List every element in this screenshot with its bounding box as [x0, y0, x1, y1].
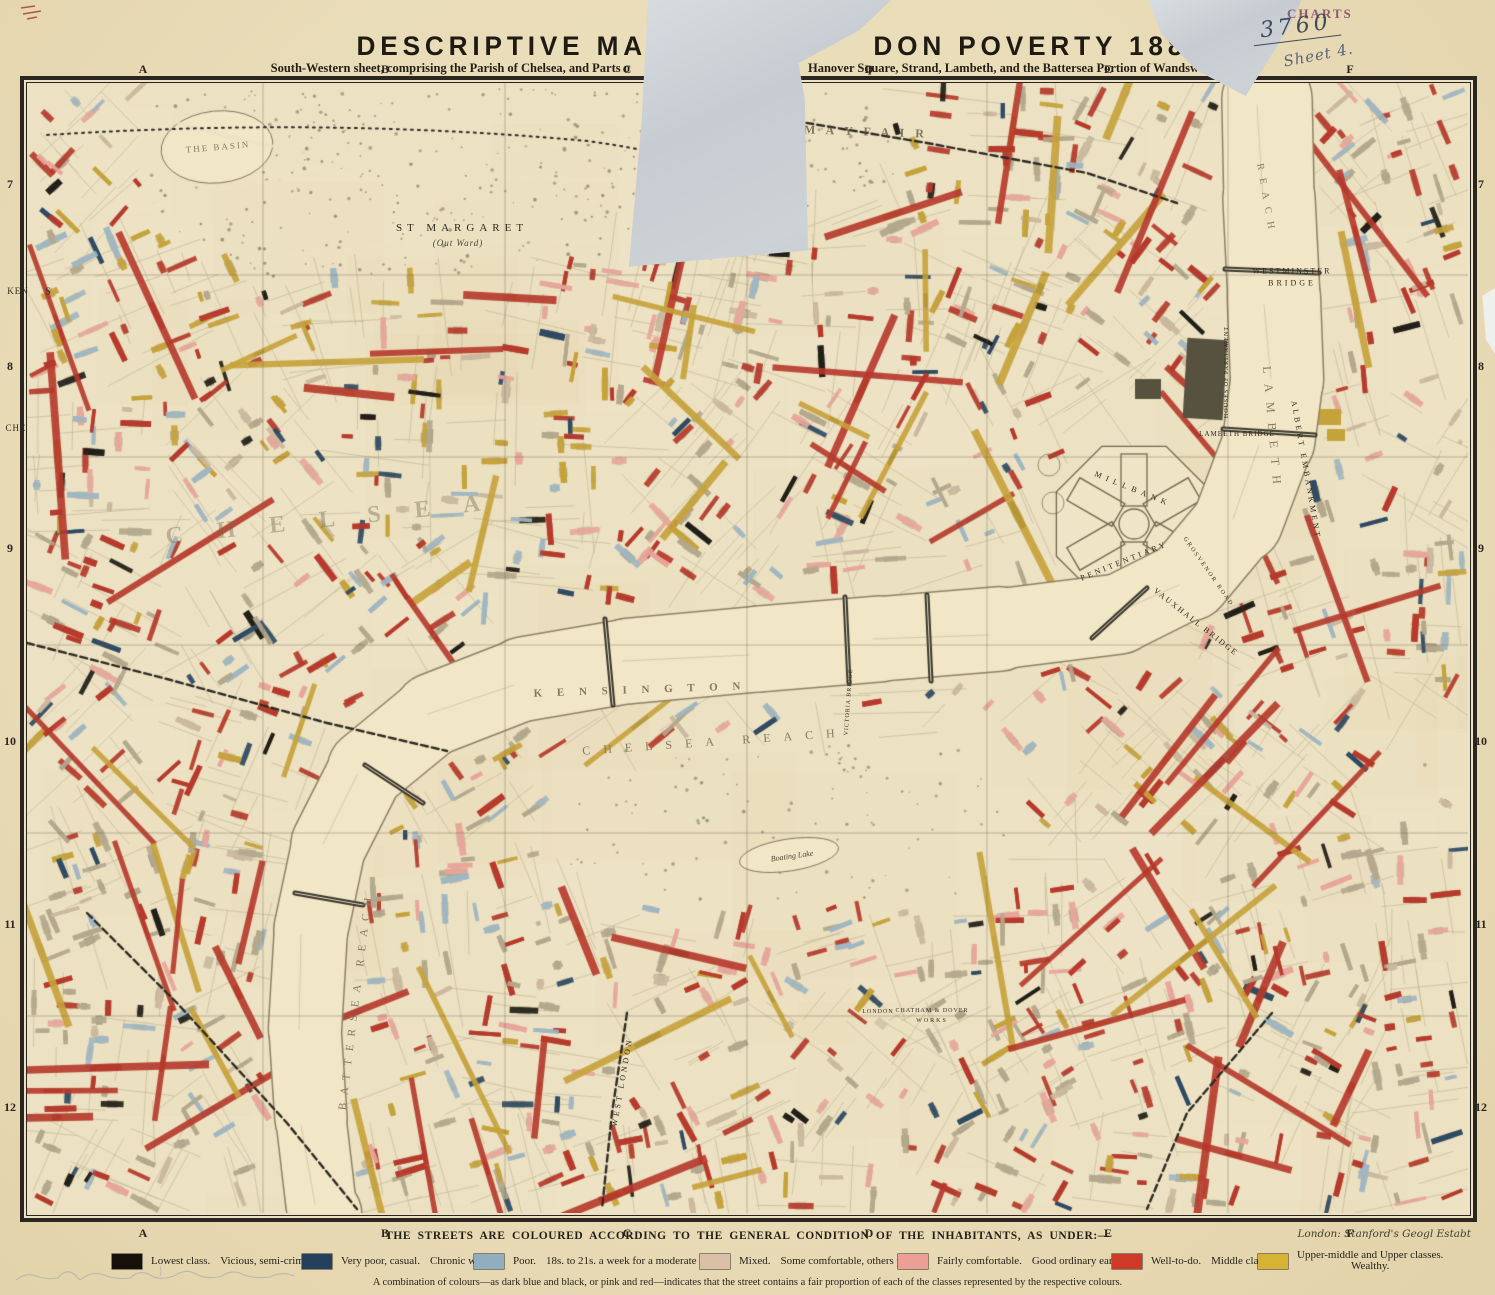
grid-letter-top: E — [1104, 62, 1112, 77]
scanned-map-page: DESCRIPTIVE MA DON POVERTY 1889. South-W… — [0, 0, 1495, 1295]
grid-number-right: 12 — [1475, 1100, 1487, 1115]
legend-swatch — [112, 1254, 142, 1269]
legend-swatch — [700, 1254, 730, 1269]
corner-scribble — [18, 2, 88, 22]
grid-letter-top: B — [381, 62, 389, 77]
legend-label: Fairly comfortable.Good ordinary earning… — [937, 1255, 1139, 1267]
legend-label: Mixed.Some comfortable, others poor. — [739, 1255, 919, 1267]
grid-number-right: 9 — [1478, 541, 1484, 556]
grid-number-left: 9 — [7, 541, 13, 556]
grid-number-right: 8 — [1478, 359, 1484, 374]
legend-label: Lowest class.Vicious, semi-criminal. — [151, 1255, 323, 1267]
grid-letter-top: C — [623, 62, 632, 77]
grid-letter-top: F — [1346, 62, 1353, 77]
grid-number-right: 7 — [1478, 177, 1484, 192]
legend-swatch — [898, 1254, 928, 1269]
grid-number-left: 11 — [4, 917, 15, 932]
grid-number-left: 10 — [4, 734, 16, 749]
legend-swatch — [302, 1254, 332, 1269]
legend-item: Fairly comfortable.Good ordinary earning… — [898, 1251, 1139, 1271]
legend-item: Poor.18s. to 21s. a week for a moderate … — [474, 1251, 730, 1271]
legend-label: Upper-middle and Upper classes.Wealthy. — [1297, 1250, 1443, 1272]
legend-caption: THE STREETS ARE COLOURED ACCORDING TO TH… — [0, 1230, 1495, 1242]
sheet-note: Sheet 4. — [1282, 39, 1355, 70]
map-subtitle-left: South-Western sheet, comprising the Pari… — [271, 61, 630, 76]
grid-number-left: 7 — [7, 177, 13, 192]
legend-item: Well-to-do.Middle class. — [1112, 1251, 1270, 1271]
grid-letter-top: D — [865, 62, 874, 77]
legend-label: Very poor, casual.Chronic want. — [341, 1255, 492, 1267]
grid-number-right: 11 — [1475, 917, 1486, 932]
map-title-left: DESCRIPTIVE MA — [357, 31, 648, 62]
grid-number-left: 12 — [4, 1100, 16, 1115]
legend-swatch — [474, 1254, 504, 1269]
legend-item: Mixed.Some comfortable, others poor. — [700, 1251, 919, 1271]
torn-nick-right-edge — [1480, 288, 1495, 354]
legend-item: Upper-middle and Upper classes.Wealthy. — [1258, 1251, 1443, 1271]
legend-swatch — [1112, 1254, 1142, 1269]
legend-label: Poor.18s. to 21s. a week for a moderate … — [513, 1255, 730, 1267]
grid-letter-top: A — [139, 62, 148, 77]
legend-item: Lowest class.Vicious, semi-criminal. — [112, 1251, 323, 1271]
grid-number-right: 10 — [1475, 734, 1487, 749]
legend-item: Very poor, casual.Chronic want. — [302, 1251, 492, 1271]
legend-label: Well-to-do.Middle class. — [1151, 1255, 1270, 1267]
legend-swatch — [1258, 1254, 1288, 1269]
legend-note: A combination of colours—as dark blue an… — [0, 1277, 1495, 1288]
grid-number-left: 8 — [7, 359, 13, 374]
publisher-imprint: London: Stanford's Geogl Estabt — [1297, 1228, 1471, 1240]
